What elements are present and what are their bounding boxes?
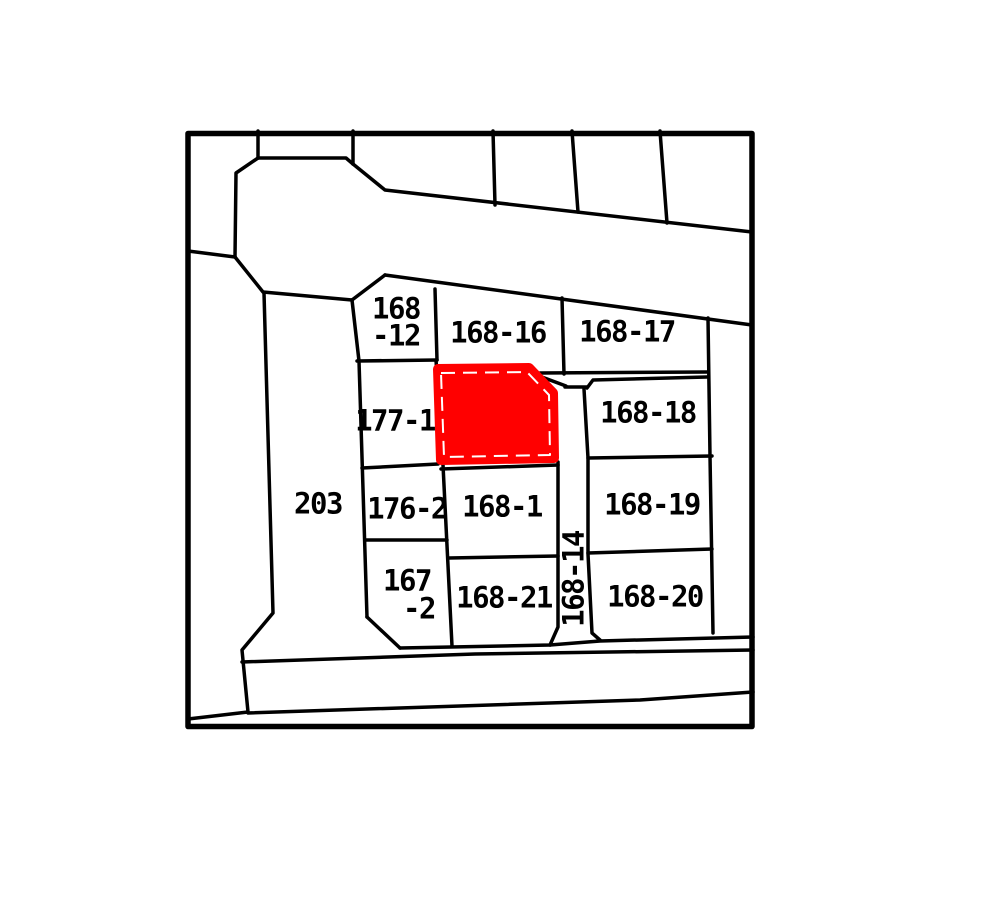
boundary-line [435, 289, 437, 360]
boundary-line [188, 251, 235, 257]
boundary-line [362, 464, 438, 468]
boundary-line [660, 131, 667, 223]
parcel-label-176-2[interactable]: 176-2 [367, 495, 447, 524]
parcel-label-168-16[interactable]: 168-16 [450, 319, 546, 348]
parcel-label-168-14[interactable]: 168-14 [560, 531, 589, 627]
parcel-label-168-1[interactable]: 168-1 [462, 493, 542, 522]
boundary-line [562, 298, 564, 374]
road-edge [385, 275, 752, 325]
parcel-label-177-1[interactable]: 177-1 [355, 407, 435, 436]
road-edge [242, 650, 753, 662]
boundary-line [235, 158, 258, 257]
parcel-label-168-18[interactable]: 168-18 [600, 399, 696, 428]
boundary-line [188, 712, 248, 719]
road-edge [353, 164, 752, 232]
boundary-line [540, 372, 707, 373]
parcel-map-drawing [0, 0, 1000, 900]
boundary-line [588, 549, 712, 553]
parcel-label-168-17[interactable]: 168-17 [579, 318, 675, 347]
road-edge [248, 692, 753, 713]
boundary-line [588, 456, 712, 458]
cadastral-map: 168-12168-16168-17177-1203176-2168-1168-… [0, 0, 1000, 900]
parcel-label-2[interactable]: -2 [403, 595, 435, 624]
boundary-line [242, 293, 273, 712]
parcel-label-12[interactable]: -12 [372, 322, 420, 351]
boundary-line [587, 377, 707, 388]
parcel-label-168-20[interactable]: 168-20 [607, 583, 703, 612]
boundary-line [258, 158, 353, 164]
boundary-line [493, 131, 495, 205]
parcel-label-168-19[interactable]: 168-19 [604, 491, 700, 520]
parcel-label-168-21[interactable]: 168-21 [456, 584, 552, 613]
parcel-label-203[interactable]: 203 [294, 490, 342, 519]
boundary-line [449, 556, 558, 558]
boundary-line [357, 360, 437, 361]
boundary-line [708, 318, 713, 633]
boundary-line [352, 300, 367, 617]
boundary-line [367, 617, 400, 648]
boundary-line [572, 131, 578, 212]
boundary-line [235, 257, 352, 300]
boundary-line [441, 465, 558, 469]
